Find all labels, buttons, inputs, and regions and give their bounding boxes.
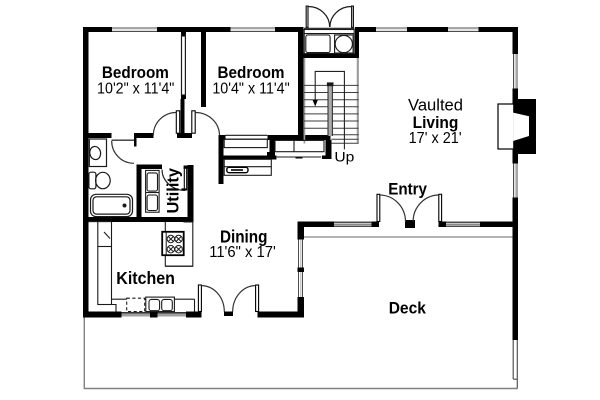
svg-text:Bedroom: Bedroom	[218, 63, 285, 82]
svg-text:Deck: Deck	[389, 298, 427, 317]
svg-text:Entry: Entry	[388, 180, 428, 198]
svg-text:11'6" x 17': 11'6" x 17'	[209, 244, 276, 261]
svg-text:Kitchen: Kitchen	[116, 268, 175, 288]
svg-text:10'2" x 11'4": 10'2" x 11'4"	[97, 80, 174, 97]
svg-text:Bedroom: Bedroom	[102, 63, 169, 82]
svg-text:Utility: Utility	[163, 168, 182, 214]
svg-text:Up: Up	[334, 148, 354, 164]
svg-text:10'4" x 11'4": 10'4" x 11'4"	[212, 80, 289, 97]
svg-text:17' x 21': 17' x 21'	[409, 130, 462, 147]
svg-text:Vaulted: Vaulted	[408, 97, 463, 115]
